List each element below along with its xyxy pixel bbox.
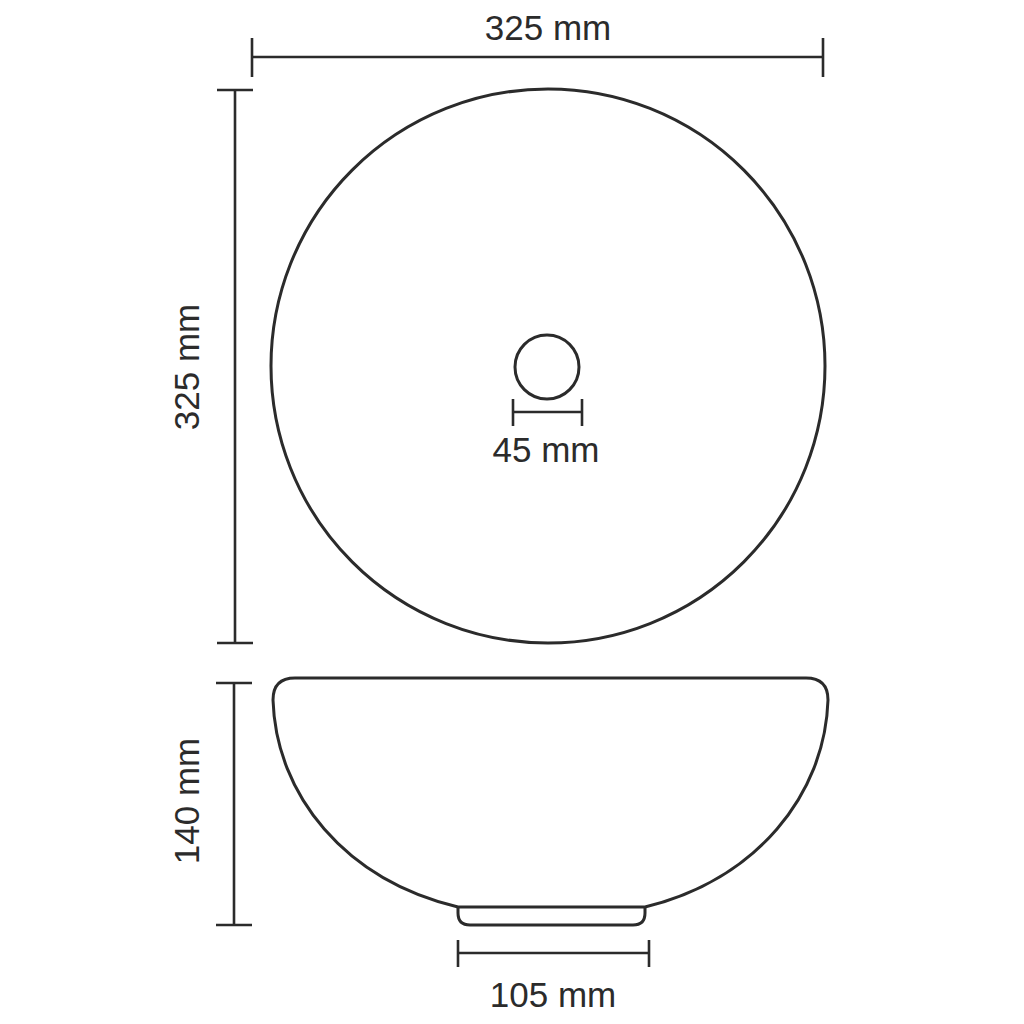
dimension-top-view-height: 325 mm	[167, 90, 253, 643]
side-view	[273, 678, 828, 925]
top-view	[271, 89, 825, 643]
vertical-diameter-label: 325 mm	[167, 304, 206, 430]
drawing-canvas: 45 mm 325 mm 325 mm 140 mm	[0, 0, 1024, 1024]
dimension-base-width: 105 mm	[458, 940, 649, 1014]
height-label: 140 mm	[167, 738, 206, 864]
outer-diameter-label: 325 mm	[485, 8, 611, 47]
basin-outer-circle	[271, 89, 825, 643]
dimension-side-height: 140 mm	[167, 683, 252, 925]
dimension-drain-width: 45 mm	[493, 399, 600, 469]
base-width-label: 105 mm	[490, 975, 616, 1014]
base-foot-outline	[458, 907, 645, 925]
dimension-top-width: 325 mm	[252, 8, 823, 77]
drain-diameter-label: 45 mm	[493, 430, 600, 469]
bowl-outline	[273, 678, 828, 907]
basin-dimension-diagram: 45 mm 325 mm 325 mm 140 mm	[0, 0, 1024, 1024]
drain-circle	[515, 335, 579, 399]
